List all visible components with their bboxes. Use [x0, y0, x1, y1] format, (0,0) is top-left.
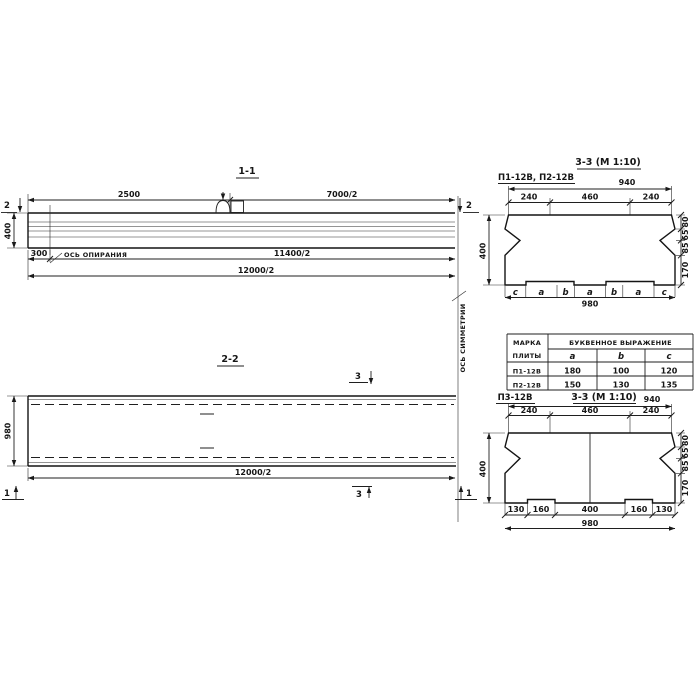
section-1-1: 1-1 2500 7000/2 2 2	[1, 166, 479, 280]
cut-marker-3-top: 3	[349, 371, 371, 384]
cut-marker-2-label: 2	[4, 201, 10, 211]
table-row: П2-12В 150 130 135	[513, 381, 678, 390]
section-3-3-title: 3-3 (М 1:10)	[571, 392, 637, 403]
drawing-sheet: 1-1 2500 7000/2 2 2	[0, 0, 700, 700]
dim-11400-2: 11400/2	[274, 249, 310, 258]
letter-b2: b	[611, 288, 617, 298]
slab-plan-view	[28, 396, 456, 466]
row-a: 150	[564, 381, 581, 390]
dim-300: 300	[31, 249, 48, 258]
dim-460: 460	[582, 406, 599, 415]
dim-85: 85	[681, 460, 690, 472]
plate-label: П3-12В	[498, 393, 533, 403]
table-col-b: b	[618, 352, 624, 362]
dim-400: 400	[479, 242, 488, 259]
dim-400: 400	[4, 222, 13, 239]
symmetry-axis: ОСЬ СИММЕТРИИ	[452, 196, 467, 522]
dim-12000-2: 12000/2	[235, 468, 271, 477]
cut-marker-2-label: 2	[466, 201, 472, 211]
dim-940: 940	[619, 178, 636, 187]
dim-980: 980	[4, 422, 13, 439]
letter-c2: c	[662, 288, 667, 298]
dim-240-left: 240	[521, 193, 538, 202]
cut-marker-3-bottom: 3	[352, 487, 372, 501]
dim-240-right: 240	[643, 193, 660, 202]
cross-section-3-3-lower: П3-12В 3-3 (М 1:10) 940 240 460 240 400 …	[479, 392, 691, 529]
letter-a2: a	[587, 288, 593, 298]
dim-240-right: 240	[643, 406, 660, 415]
cut-marker-3-label: 3	[355, 372, 361, 382]
dim-240-left: 240	[521, 406, 538, 415]
dim-940: 940	[644, 395, 661, 404]
table-header-mark-2: ПЛИТЫ	[513, 352, 542, 360]
dim-85: 85	[681, 242, 690, 254]
table-col-a: a	[570, 352, 576, 362]
section-1-1-title: 1-1	[238, 166, 255, 177]
engineering-drawing: 1-1 2500 7000/2 2 2	[0, 0, 700, 700]
dim-400: 400	[479, 460, 488, 477]
cut-marker-1-label: 1	[466, 489, 472, 499]
row-c: 120	[661, 367, 678, 376]
dim-980: 980	[582, 519, 599, 528]
letter-b1: b	[563, 288, 569, 298]
table-row: П1-12В 180 100 120	[513, 367, 678, 376]
dim-160-right: 160	[631, 505, 648, 514]
cut-marker-3-label: 3	[356, 490, 362, 500]
leader-line	[50, 253, 62, 263]
dim-80: 80	[681, 435, 690, 447]
support-axis-label: ОСЬ ОПИРАНИЯ	[64, 251, 127, 259]
symmetry-axis-label: ОСЬ СИММЕТРИИ	[459, 303, 467, 372]
section-3-3-title: 3-3 (М 1:10)	[575, 157, 641, 168]
dim-170: 170	[681, 261, 690, 278]
dim-12000-2: 12000/2	[238, 266, 274, 275]
symmetry-axis-slash	[452, 291, 466, 301]
table-header-mark-1: МАРКА	[513, 339, 541, 347]
dim-130-right: 130	[656, 505, 673, 514]
dim-460: 460	[582, 193, 599, 202]
cut-marker-2-left: 2	[1, 198, 20, 213]
plates-table: МАРКА ПЛИТЫ БУКВЕННОЕ ВЫРАЖЕНИЕ a b c П1…	[507, 334, 693, 390]
dim-80: 80	[681, 216, 690, 228]
letter-a3: a	[636, 288, 642, 298]
dim-7000-2: 7000/2	[327, 190, 358, 199]
row-mark: П1-12В	[513, 368, 541, 376]
dim-65: 65	[681, 447, 690, 459]
table-col-c: c	[666, 352, 671, 362]
row-b: 100	[613, 367, 630, 376]
letter-a1: a	[539, 288, 545, 298]
dim-160-left: 160	[533, 505, 550, 514]
plates-label: П1-12В, П2-12В	[498, 173, 574, 183]
dim-170: 170	[681, 479, 690, 496]
lifting-loop-plate	[231, 201, 244, 213]
cut-marker-1-left: 1	[2, 486, 24, 500]
row-b: 130	[613, 381, 630, 390]
section-2-2-title: 2-2	[221, 354, 238, 365]
row-c: 135	[661, 381, 678, 390]
dim-400-mid: 400	[582, 505, 599, 514]
cut-marker-2-right: 2	[460, 198, 479, 213]
slab-cross-section-body	[505, 215, 675, 285]
dim-980: 980	[582, 300, 599, 309]
table-header-expression: БУКВЕННОЕ ВЫРАЖЕНИЕ	[569, 339, 672, 347]
section-2-2: 2-2 3 980 12000/2 1	[2, 354, 477, 500]
cut-marker-1-label: 1	[4, 489, 10, 499]
dim-130-left: 130	[508, 505, 525, 514]
letter-c1: c	[513, 288, 518, 298]
row-mark: П2-12В	[513, 382, 541, 390]
dim-65: 65	[681, 229, 690, 241]
row-a: 180	[564, 367, 581, 376]
dim-2500: 2500	[118, 190, 141, 199]
cross-section-3-3-upper: 3-3 (М 1:10) П1-12В, П2-12В 940 240 460 …	[479, 157, 691, 309]
lifting-loop-arch	[216, 201, 230, 214]
centerline-marks	[200, 414, 214, 448]
